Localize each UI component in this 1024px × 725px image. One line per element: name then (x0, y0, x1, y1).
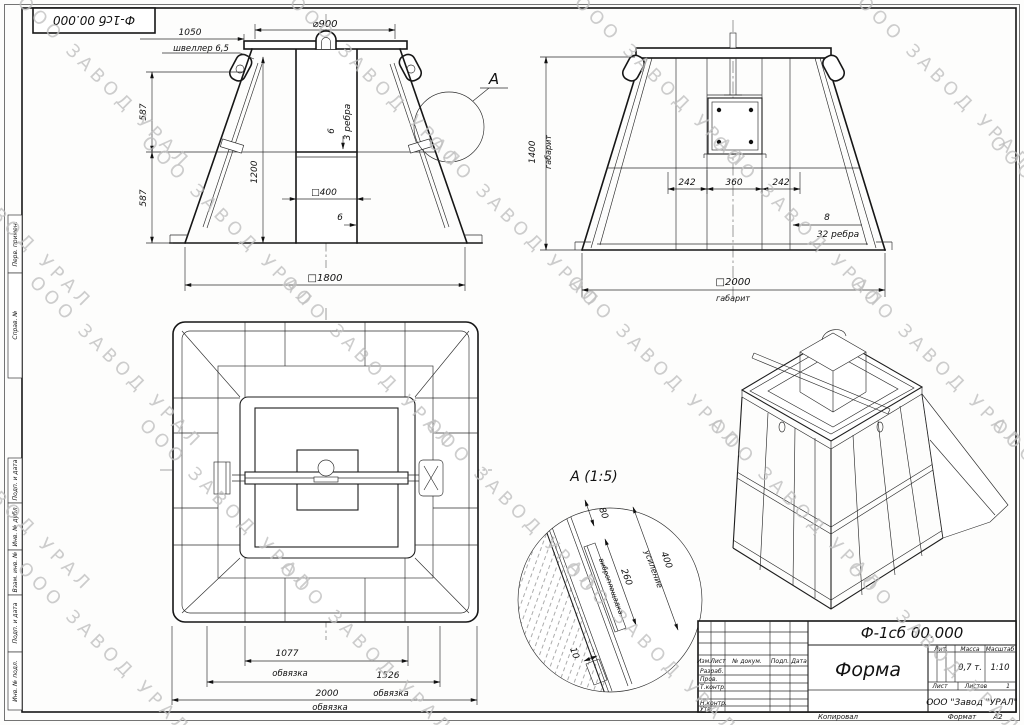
dim-587-bottom: 587 (139, 189, 149, 206)
strip-vzam-inv: Взам. инв. № (12, 552, 19, 593)
detail-a: А (1:5) 80 виброплощадка 260 усиление 40… (455, 465, 702, 700)
dim-242-left: 242 (678, 178, 695, 188)
mass-label: Масса (960, 646, 979, 653)
row-utv: Утв. (700, 706, 713, 713)
col-ndoc: № докум. (731, 658, 762, 665)
sheets-value: 1 (1006, 683, 1010, 690)
strip-podp-data-1: Подп. и дата (12, 459, 19, 500)
ribs-3-label: 3 ребра (343, 104, 353, 141)
scale-value: 1:10 (990, 663, 1009, 673)
detail-callout-circle (414, 92, 484, 162)
format-value: А2 (992, 713, 1003, 721)
title-block: Изм. Лист № докум. Подп. Дата Разраб. Пр… (697, 621, 1018, 721)
dim-587-top: 587 (139, 103, 149, 120)
scale-label: Масштаб (986, 646, 1015, 653)
dim-242-right: 242 (772, 178, 789, 188)
dim-sq2000: □2000 (716, 277, 751, 288)
row-tkontr: Т.контр. (700, 684, 726, 691)
ribs-32-label: 32 ребра (817, 230, 859, 240)
lifting-lug (316, 31, 336, 49)
obvyazka-3: обвязка (312, 703, 347, 713)
dim-1200: 1200 (250, 160, 260, 183)
detail-a-title: А (1:5) (569, 469, 617, 485)
gabarit-horizontal: габарит (716, 294, 750, 303)
tb-doc-number: Ф-1сб 00.000 (861, 624, 964, 642)
gabarit-vertical: габарит (544, 135, 553, 169)
side-strips: Перв. примен. Справ. № Подп. и дата Инв.… (8, 215, 22, 710)
callout-letter: А (488, 70, 499, 88)
strip-inv-dubl: Инв. № дубл. (12, 505, 19, 546)
col-list: Лист (709, 658, 726, 665)
dim-900: ⌀900 (312, 19, 337, 30)
dim-1077: 1077 (276, 649, 299, 659)
clamp-left (214, 462, 230, 494)
strip-sprav-no: Справ. № (12, 310, 19, 339)
front-view: ⌀900 1050 швеллер 6,5 587 587 1200 6 3 р… (139, 14, 508, 291)
strip-perv-primen: Перв. примен. (12, 221, 19, 266)
thk-6-mid: 6 (327, 128, 337, 134)
dim-1400: 1400 (528, 140, 538, 163)
strip-podp-data-2: Подп. и дата (12, 602, 19, 643)
dim-1050: 1050 (179, 28, 202, 38)
obvyazka-1: обвязка (272, 669, 307, 679)
col-data: Дата (790, 658, 807, 665)
dim-sq400: □400 (311, 188, 337, 198)
company-name: ООО "Завод "УРАЛ" (926, 698, 1018, 708)
dim-sq1800: □1800 (308, 273, 343, 284)
strip-inv-podl: Инв. № подл. (12, 660, 19, 701)
lit-label: Лит. (933, 646, 948, 653)
side-view: 1400 габарит 242 360 242 8 32 ребра □200… (528, 20, 892, 303)
thk-8: 8 (824, 213, 830, 223)
dim-360: 360 (725, 178, 742, 188)
dim-1526: 1526 (377, 671, 400, 681)
obvyazka-2: обвязка (373, 689, 408, 699)
drawing-canvas: Ф-1сб 00.000 Перв. примен. Справ. № Подп… (0, 0, 1024, 725)
mass-value: 0,7 т. (958, 663, 982, 673)
row-razrab: Разраб. (700, 668, 724, 675)
bolt-plate (704, 98, 766, 158)
dim-2000: 2000 (316, 689, 339, 699)
drawing-sheet: Ф-1сб 00.000 Перв. примен. Справ. № Подп… (0, 0, 1024, 725)
col-podp: Подп. (771, 658, 789, 665)
channel-label: швеллер 6,5 (173, 44, 229, 54)
corner-stamp: Ф-1сб 00.000 (33, 8, 155, 33)
thk-6-bottom: 6 (337, 213, 343, 223)
plan-view-dimensions: 1077 обвязка 1526 обвязка 2000 обвязка (172, 626, 477, 713)
clamp-right (419, 460, 443, 496)
format-label: Формат (948, 713, 977, 721)
sheet-label: Лист (931, 683, 948, 690)
corner-doc-number: Ф-1сб 00.000 (53, 13, 135, 27)
tb-part-name: Форма (835, 659, 901, 681)
plan-view: 1077 обвязка 1526 обвязка 2000 обвязка (160, 308, 492, 713)
sheets-label: Листов (964, 683, 988, 690)
row-prov: Пров. (700, 676, 718, 683)
col-izm: Изм. (697, 658, 711, 665)
side-view-dimensions: 1400 габарит 242 360 242 8 32 ребра □200… (528, 57, 885, 303)
kopiroval-label: Копировал (818, 713, 859, 721)
isometric-view (733, 330, 1008, 609)
